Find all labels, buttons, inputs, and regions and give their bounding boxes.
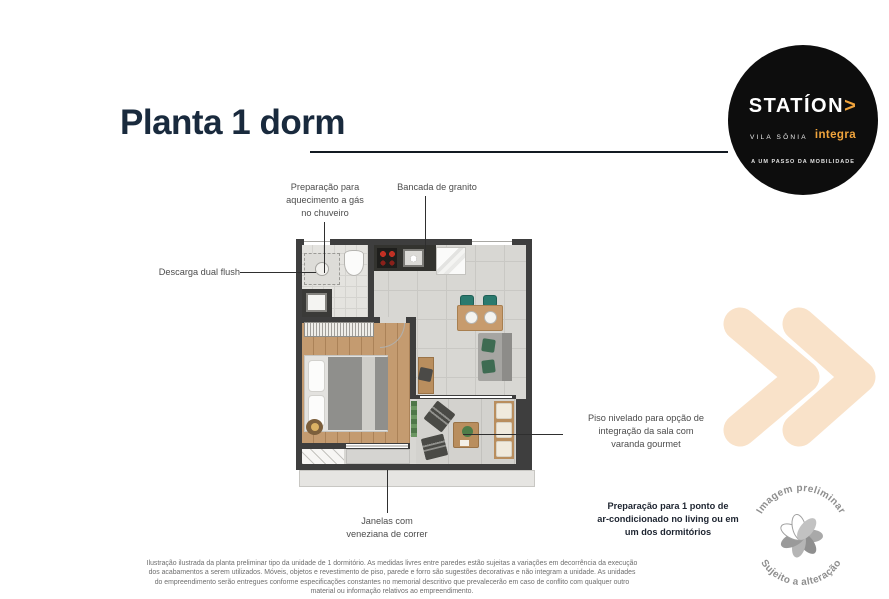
shower-box	[304, 253, 340, 285]
bench-cushion	[496, 422, 512, 438]
plate	[484, 311, 497, 324]
desk-chair	[418, 367, 433, 382]
logo-brand-row: STATÍON>	[728, 95, 878, 118]
coffee-table	[453, 422, 479, 448]
planter	[411, 401, 417, 437]
disclaimer: Ilustração ilustrada da planta prelimina…	[146, 559, 638, 597]
preliminary-stamp: Imagem preliminar Sujeito a alteração	[744, 478, 858, 594]
bench-cushion	[496, 403, 512, 419]
logo-location: VILA SÔNIA	[750, 134, 808, 141]
leader-line	[387, 470, 388, 513]
kitchen-window	[472, 239, 512, 245]
callout-granite-counter: Bancada de granito	[377, 181, 497, 194]
page-title: Planta 1 dorm	[120, 103, 345, 143]
callout-level-floor: Piso nivelado para opção de integração d…	[560, 412, 732, 451]
stamp-bottom-text: Sujeito a alteração	[758, 558, 843, 588]
stamp-flower-icon	[778, 513, 823, 559]
leader-line	[240, 272, 316, 273]
floorplan	[296, 239, 532, 470]
brand-logo: STATÍON> VILA SÔNIA integra A UM PASSO D…	[728, 45, 878, 195]
logo-subbrand: integra	[815, 129, 856, 141]
plate	[465, 311, 478, 324]
svg-text:Sujeito a alteração: Sujeito a alteração	[758, 558, 843, 588]
wall	[410, 317, 416, 399]
cooktop	[377, 248, 397, 268]
plant	[462, 426, 473, 437]
sofa-pillow	[481, 338, 496, 353]
bed-throw	[362, 357, 375, 430]
wardrobe	[304, 322, 374, 337]
dining-table	[457, 305, 503, 331]
logo-tagline: A UM PASSO DA MOBILIDADE	[728, 159, 878, 165]
logo-arrow-icon: >	[844, 95, 857, 117]
sofa-back	[502, 333, 512, 381]
logo-brand-text: STATÍON	[749, 95, 844, 117]
balcony-bench	[494, 401, 514, 459]
stamp-top-text: Imagem preliminar	[755, 483, 848, 516]
leader-line	[463, 434, 563, 435]
kitchen-sink	[403, 249, 424, 267]
floorplan-outer-ledge	[299, 470, 535, 487]
tray	[460, 440, 469, 446]
bed-pillow	[308, 360, 325, 392]
fridge-panel	[436, 247, 466, 275]
leader-line	[425, 196, 426, 256]
bench-cushion	[496, 441, 512, 457]
wall	[516, 399, 526, 464]
shower-drain	[315, 262, 329, 276]
bathroom-sink	[306, 293, 327, 312]
bed-blanket	[328, 357, 388, 430]
title-underline	[310, 151, 728, 153]
svg-text:Imagem preliminar: Imagem preliminar	[755, 483, 848, 516]
bedroom-window	[346, 444, 408, 448]
logo-second-row: VILA SÔNIA integra	[750, 129, 856, 141]
bathroom-window	[304, 239, 330, 245]
lamp	[311, 423, 319, 431]
nightstand	[306, 419, 323, 435]
double-chevron-icon	[712, 300, 889, 450]
ac-preparation-note: Preparação para 1 ponto de ar-condiciona…	[582, 500, 754, 539]
callout-dual-flush: Descarga dual flush	[100, 266, 240, 279]
balcony-window	[420, 396, 512, 398]
page: Planta 1 dorm STATÍON> VILA SÔNIA integr…	[0, 0, 889, 599]
sofa-pillow	[481, 359, 495, 373]
sofa	[478, 333, 512, 381]
leader-line	[324, 222, 325, 273]
hatched-area	[302, 449, 344, 464]
callout-windows: Janelas com veneziana de correr	[322, 515, 452, 541]
ac-ledge	[346, 449, 410, 464]
toilet	[344, 250, 364, 276]
